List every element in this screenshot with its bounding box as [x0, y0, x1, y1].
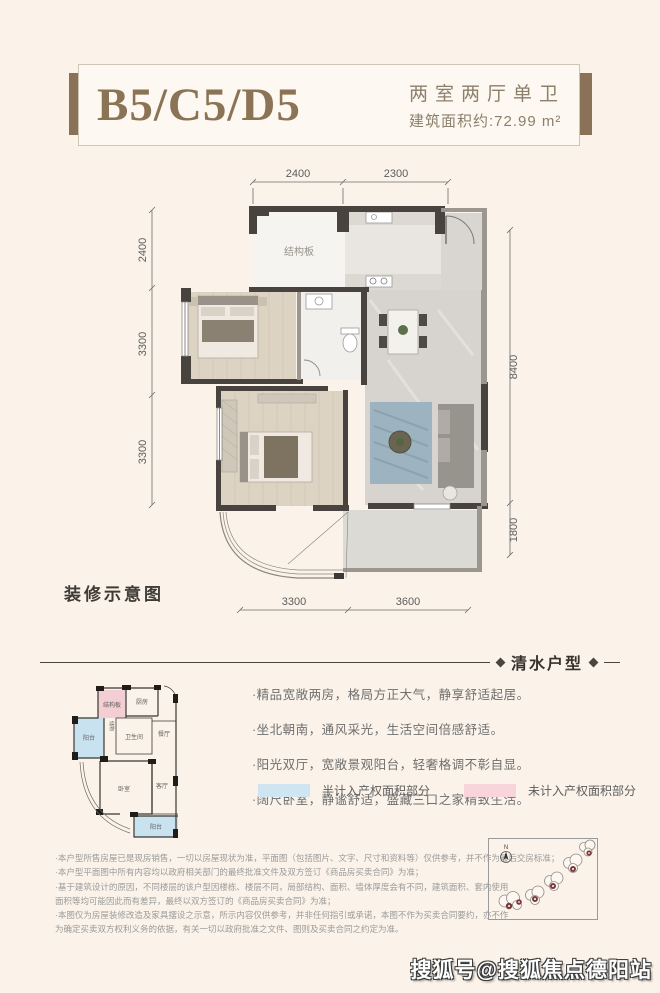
- feature-item: ·坐北朝南，通风采光，生活空间倍感舒适。: [252, 719, 588, 738]
- structural-room-label: 结构板: [284, 245, 314, 258]
- unit-code: B5/C5/D5: [97, 82, 301, 129]
- bed1-furniture: [189, 296, 267, 358]
- plan-caption: 装修示意图: [64, 580, 164, 605]
- disclaimer-line: 为确定买卖双方权利义务的依据，有关一切以政府批准之文件、图则及买卖合同之约定为准…: [55, 922, 487, 936]
- divider-line: [604, 662, 620, 663]
- thumb-label-living: 客厅: [156, 782, 168, 790]
- header-box: B5/C5/D5 两室两厅单卫 建筑面积约:72.99 m²: [78, 64, 580, 146]
- thumb-label-dining: 餐厅: [158, 730, 170, 738]
- compass-icon: N: [501, 845, 512, 863]
- legend-label: 未计入产权面积部分: [528, 782, 636, 799]
- floor-plan-drawing: 结构板 2400 2300 2400 3300 3300 8400: [138, 160, 548, 630]
- disclaimer-line: 面积等均可能因此而有差异，最终以双方签订的《商品房买卖合同》为准；: [55, 894, 487, 908]
- header-accent-bar-right: [579, 73, 592, 135]
- entry-floor: [441, 213, 485, 290]
- legend-not-counted: 未计入产权面积部分: [464, 782, 636, 799]
- site-blobs: [499, 840, 595, 910]
- dimension-label: 3300: [138, 332, 149, 356]
- dimension-label: 1800: [508, 518, 520, 542]
- legend-swatch-pink: [464, 784, 516, 797]
- legend-label: 半计入产权面积部分: [322, 782, 430, 799]
- divider-ornament-icon: [589, 657, 599, 667]
- thumb-terrace-curve: [80, 762, 130, 833]
- north-label: N: [504, 845, 508, 851]
- thumb-walls: [74, 686, 178, 837]
- legend-swatch-blue: [258, 784, 310, 797]
- plant-icon: [396, 438, 404, 446]
- dimension-label: 2300: [384, 168, 408, 180]
- disclaimer-line: ·本户型所售房屋已是现房销售，一切以房屋现状为准，平面图（包括图片、文字、尺寸和…: [55, 851, 487, 865]
- thumb-label-bathroom: 卫生间: [125, 733, 143, 741]
- dimension-label: 3300: [138, 440, 149, 464]
- dimension-label: 8400: [508, 355, 520, 379]
- header-right: 两室两厅单卫 建筑面积约:72.99 m²: [409, 79, 565, 131]
- balcony-floor: [343, 510, 481, 570]
- thumb-label-bedroom: 卧室: [118, 785, 130, 793]
- thumb-label-balcony-bottom: 阳台: [150, 823, 162, 831]
- dimension-label: 3600: [396, 596, 420, 608]
- divider-title: 清水户型: [511, 650, 583, 674]
- thumb-label-structural: 结构板: [103, 701, 121, 709]
- layout-type: 两室两厅单卫: [409, 79, 565, 106]
- site-map: N: [488, 838, 598, 920]
- divider-ornament-icon: [496, 657, 506, 667]
- dimension-label: 2400: [138, 238, 149, 262]
- area-text: 建筑面积约:72.99 m²: [409, 110, 565, 131]
- disclaimer-line: ·基于建筑设计的原因，不同楼层的该户型因楼栋、楼层不同，局部结构、面积、墙体厚度…: [55, 880, 487, 894]
- poster-page: B5/C5/D5 两室两厅单卫 建筑面积约:72.99 m²: [0, 0, 660, 993]
- disclaimer-block: ·本户型所售房屋已是现房销售，一切以房屋现状为准，平面图（包括图片、文字、尺寸和…: [55, 851, 487, 937]
- thumb-label-storage: 储物: [108, 721, 115, 731]
- area-legend: 半计入产权面积部分 未计入产权面积部分: [258, 782, 636, 799]
- thumb-label-balcony-left: 阳台: [83, 734, 95, 742]
- dimension-label: 2400: [286, 168, 310, 180]
- feature-list: ·精品宽敞两房，格局方正大气，静享舒适起居。 ·坐北朝南，通风采光，生活空间倍感…: [252, 684, 588, 824]
- feature-item: ·阳光双厅，宽敞景观阳台，轻奢格调不彰自显。: [252, 754, 588, 773]
- thumbnail-plan: 结构板 厨房 储物 卫生间 餐厅 阳台 卧室 客厅 阳台: [60, 666, 238, 856]
- watermark: 搜狐号@搜狐焦点德阳站: [411, 954, 652, 984]
- dimension-label: 3300: [282, 596, 306, 608]
- disclaimer-line: ·本图仅为房屋装修改造及家具摆设之示意，所示内容仅供参考，并非任何指引或承诺，本…: [55, 908, 487, 922]
- legend-half-counted: 半计入产权面积部分: [258, 782, 430, 799]
- floor-plan: 结构板 2400 2300 2400 3300 3300 8400: [138, 160, 548, 630]
- terrace-post: [334, 573, 344, 579]
- disclaimer-line: ·本户型平面图中所有内容均以政府相关部门的最终批准文件及双方签订《商品房买卖合同…: [55, 865, 487, 879]
- divider-line: [40, 662, 490, 663]
- terrace-curves: [220, 512, 348, 578]
- feature-item: ·精品宽敞两房，格局方正大气，静享舒适起居。: [252, 684, 588, 703]
- plant-icon: [398, 325, 408, 335]
- thumb-label-kitchen: 厨房: [136, 698, 148, 706]
- site-map-drawing: N: [489, 839, 597, 919]
- thumbnail-plan-drawing: 结构板 厨房 储物 卫生间 餐厅 阳台 卧室 客厅 阳台: [60, 666, 238, 856]
